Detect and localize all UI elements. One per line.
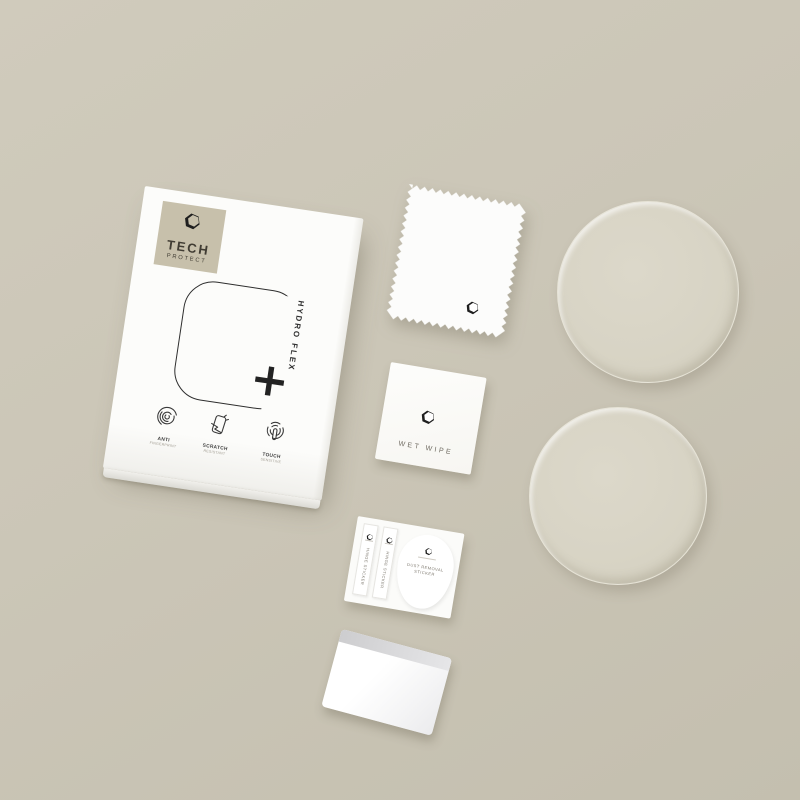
wet-wipe-label: WET WIPE	[377, 437, 474, 460]
squeegee-card	[321, 629, 452, 736]
brand-logo-patch: TECH PROTECT	[154, 201, 227, 274]
hexagon-logo-icon	[383, 531, 394, 550]
film-disc-1	[557, 201, 739, 383]
scratch-icon	[203, 410, 233, 442]
dust-removal-label: DUST REMOVAL STICKER	[402, 561, 448, 579]
hinge-sticker-label: HINGE STICKER	[360, 548, 369, 578]
microfiber-cloth	[384, 184, 527, 347]
hexagon-logo-icon	[180, 210, 203, 238]
hinge-sticker-label: HINGE STICKER	[380, 551, 389, 581]
box-side-edge	[103, 468, 321, 509]
dust-removal-sticker: DUST REMOVAL STICKER	[391, 531, 458, 613]
film-disc-2	[529, 407, 707, 585]
plus-icon: +	[242, 351, 297, 408]
wet-wipe-packet: WET WIPE	[375, 362, 487, 475]
hexagon-logo-icon	[364, 528, 375, 547]
touch-icon	[260, 418, 290, 450]
box-right-shading	[313, 217, 364, 500]
fingerprint-icon	[152, 402, 182, 434]
scene-background: TECH PROTECT HYDRO FLEX + ANTI FINGERPRI…	[0, 0, 800, 800]
hexagon-logo-icon	[417, 408, 437, 433]
sticker-card: HINGE STICKER HINGE STICKER	[344, 516, 465, 619]
product-box: TECH PROTECT HYDRO FLEX + ANTI FINGERPRI…	[103, 186, 364, 501]
squeegee-felt-band	[339, 629, 452, 671]
feature-touch-sensitive: TOUCH SENSITIVE	[240, 416, 306, 472]
